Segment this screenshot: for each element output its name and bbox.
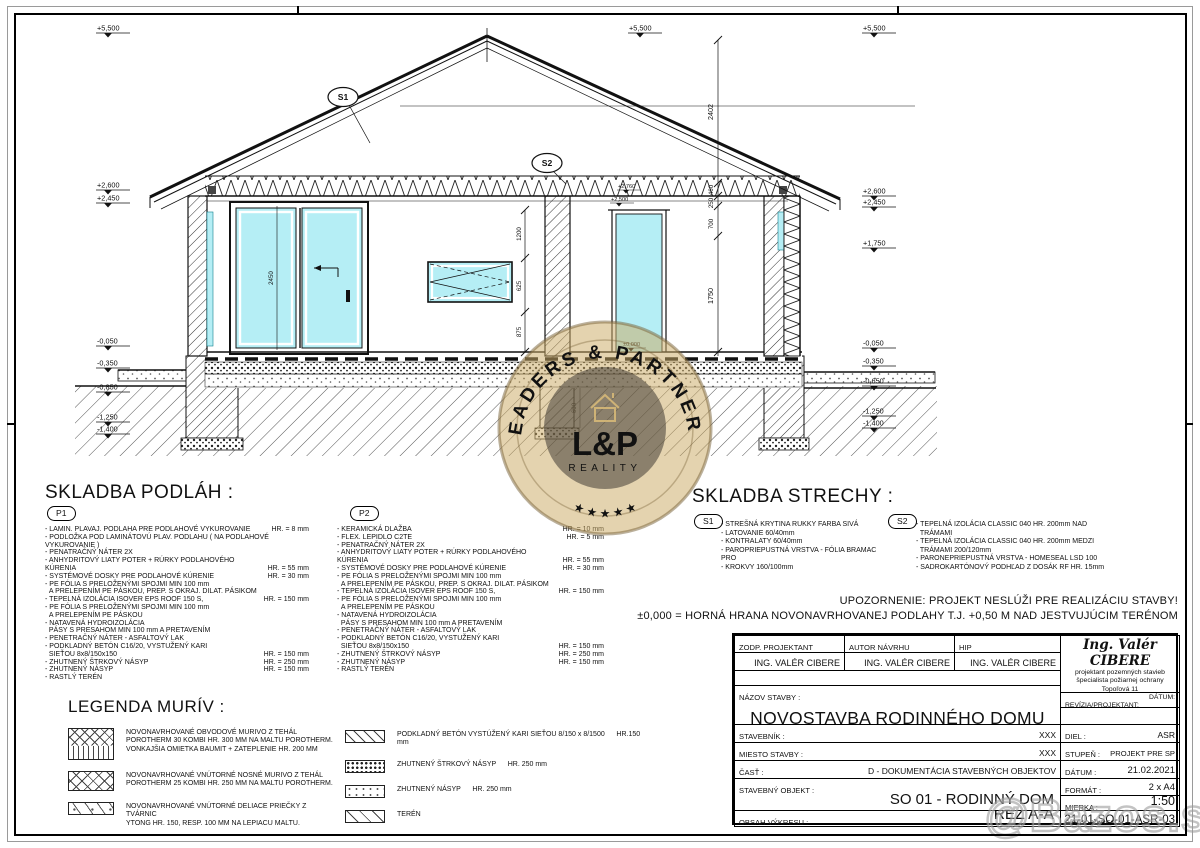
- floor-layer-text: - ZHUTNENÝ ŠTRKOVÝ NÁSYP: [337, 651, 440, 659]
- floor-layer-thickness: HR. = 30 mm: [559, 565, 604, 573]
- p1-list: - LAMIN. PLAVAJ. PODLAHA PRE PODLAHOVÉ V…: [45, 526, 309, 682]
- floor-layer-item: - PENETRAČNÝ NÁTER - ASFALTOVÝ LAK: [45, 635, 309, 643]
- obsah-label: OBSAH VÝKRESU :: [739, 818, 808, 827]
- warning-notes: UPOZORNENIE: PROJEKT NESLÚŽI PRE REALIZÁ…: [600, 594, 1178, 623]
- elevation-label: -0,350: [863, 357, 884, 366]
- elevation-label: -0,350: [97, 359, 118, 368]
- legend-swatch: [68, 771, 114, 791]
- floor-layer-item: - RASTLÝ TERÉN: [45, 674, 309, 682]
- floor-layer-text: - FLEX. LEPIDLO C2TE: [337, 534, 412, 542]
- floor-layer-thickness: HR. = 150 mm: [260, 596, 309, 604]
- project-title: NOVOSTAVBA RODINNÉHO DOMU: [739, 708, 1056, 725]
- stamp-signature: Ing. Valér CIBERE: [1065, 637, 1175, 669]
- legend-swatch: [345, 730, 385, 743]
- empty-cell: [1060, 707, 1180, 725]
- legend-title: LEGENDA MURÍV :: [68, 697, 225, 717]
- roof-layer-text: - STREŠNÁ KRYTINA RUKKY FARBA SIVÁ: [721, 521, 891, 530]
- floor-layer-thickness: HR. = 150 mm: [260, 666, 309, 674]
- floor-layer-text: - RASTLÝ TERÉN: [337, 666, 394, 674]
- format-label: FORMÁT :: [1065, 786, 1101, 795]
- datum-label: DÁTUM :: [1065, 768, 1096, 777]
- floor-layer-thickness: HR. = 150 mm: [555, 659, 604, 667]
- floor-layer-text: - PODKLADNÝ BETÓN C16/20, VYSTUŽENÝ KARI…: [45, 643, 207, 659]
- legend-swatch: [345, 785, 385, 798]
- p1-bubble: P1: [47, 506, 76, 521]
- floor-layer-text: - PE FÓLIA S PRELOŽENÝMI SPOJMI MIN 100 …: [337, 596, 501, 612]
- p2-bubble: P2: [350, 506, 379, 521]
- zero-level-line: ±0,000 = HORNÁ HRANA NOVONAVRHOVANEJ POD…: [600, 609, 1178, 624]
- legend-item: PODKLADNÝ BETÓN VYSTÚŽENÝ KARI SIEŤOU 8/…: [345, 730, 645, 748]
- s1-bubble: S1: [694, 514, 723, 529]
- elevation-label: +5,500: [97, 24, 120, 33]
- legend-text: PODKLADNÝ BETÓN VYSTÚŽENÝ KARI SIEŤOU 8/…: [397, 730, 645, 748]
- legend-item: NOVONAVRHOVANÉ OBVODOVÉ MURIVO Z TEHÁL P…: [68, 728, 338, 760]
- openings: [230, 202, 670, 354]
- house-cross-section: 2402 460 250 700 1750 1200 625 875 2450: [0, 0, 1200, 480]
- roof-layer-text: - KONTRALATY 60/40mm: [721, 538, 891, 547]
- elevation-label: +2,760: [618, 184, 635, 190]
- zodp-name: ING. VALÉR CIBERE: [754, 658, 840, 668]
- floor-layer-item: - PE FÓLIA S PRELOŽENÝMI SPOJMI MIN 100 …: [45, 604, 309, 620]
- floor-layer-thickness: HR. = 55 mm: [264, 565, 309, 573]
- elevation-label: -1,400: [863, 419, 884, 428]
- floor-layer-text: - PE FÓLIA S PRELOŽENÝMI SPOJMI MIN 100 …: [45, 581, 257, 597]
- roof-layer-text: - SADROKARTÓNOVÝ PODHĽAD Z DOSÁK RF HR. …: [916, 564, 1178, 573]
- floor-layer-thickness: HR. = 5 mm: [562, 534, 604, 542]
- bubble-s1-label: S1: [338, 92, 349, 102]
- floor-layer-item: - TEPELNÁ IZOLÁCIA ISOVER EPS ROOF 150 S…: [337, 588, 604, 596]
- elevation-label: +2,600: [97, 181, 120, 190]
- stavebnik-label: STAVEBNÍK :: [739, 732, 785, 741]
- roof-layer-text: - TEPELNÁ IZOLÁCIA CLASSIC 040 HR. 200mm…: [916, 538, 1178, 555]
- elevation-label: +2,450: [97, 194, 120, 203]
- level-markers-right: +5,500 +2,600 +2,450 +1,750 -0,050 -0,35…: [862, 24, 896, 433]
- floor-layer-item: - ZHUTNENÝ ŠTRKOVÝ NÁSYP HR. = 250 mm: [337, 651, 604, 659]
- roof-layer-text: - TEPELNÁ IZOLÁCIA CLASSIC 040 HR. 200mm…: [916, 521, 1178, 538]
- floor-layer-thickness: HR. = 55 mm: [559, 557, 604, 565]
- dim-label: 2450: [268, 271, 275, 285]
- s2-bubble: S2: [888, 514, 917, 529]
- floor-layer-thickness: HR. = 8 mm: [267, 526, 309, 534]
- elevation-label: -0,850: [97, 383, 118, 392]
- roof-layer-text: - PARONEPRIEPUSTNÁ VRSTVA - HOMESEAL LSD…: [916, 555, 1178, 564]
- floor-layer-text: - KERAMICKÁ DLAŽBA: [337, 526, 412, 534]
- legend-item: ZHUTNENÝ NÁSYP HR. 250 mm: [345, 785, 645, 798]
- wall-plate-right: [779, 186, 787, 194]
- legend-text: ZHUTNENÝ NÁSYP HR. 250 mm: [397, 785, 512, 794]
- bubble-s2-label: S2: [542, 158, 553, 168]
- mierka-value: 1:50: [1151, 795, 1175, 808]
- elevation-label: -0,650: [863, 377, 884, 386]
- format-value: 2 x A4: [1149, 782, 1175, 793]
- floor-layer-text: - LAMIN. PLAVAJ. PODLAHA PRE PODLAHOVÉ V…: [45, 526, 250, 534]
- hip-label: HIP: [959, 643, 972, 652]
- dim-label: 700: [708, 218, 715, 229]
- dim-label: 625: [516, 280, 523, 291]
- wall-right-exterior: [764, 196, 800, 356]
- interior-door: [608, 210, 670, 352]
- floor-layer-thickness: HR. = 150 mm: [555, 588, 604, 596]
- floor-layer-item: - PODLOŽKA POD LAMINÁTOVÚ PLAV. PODLAHU …: [45, 534, 309, 550]
- floor-layer-item: - ZHUTNENÝ NÁSYP HR. = 150 mm: [45, 666, 309, 674]
- floor-layer-text: - PODLOŽKA POD LAMINÁTOVÚ PLAV. PODLAHU …: [45, 534, 305, 550]
- dim-label: 460: [708, 184, 715, 195]
- wall-insulation-layer: [784, 196, 800, 356]
- wall-left-exterior: [188, 196, 213, 356]
- floor-layer-text: - SYSTÉMOVÉ DOSKY PRE PODLAHOVÉ KÚRENIE: [45, 573, 214, 581]
- floor-layer-item: - KERAMICKÁ DLAŽBA HR. = 10 mm: [337, 526, 604, 534]
- floor-layer-thickness: HR. = 250 mm: [260, 659, 309, 667]
- floor-layer-text: - ANHYDRITOVÝ LIATY POTER + RÚRKY PODLAH…: [45, 557, 264, 573]
- legend-text: ZHUTNENÝ ŠTRKOVÝ NÁSYP HR. 250 mm: [397, 760, 547, 769]
- floor-layer-text: - PODKLADNÝ BETÓN C16/20, VYSTUŽENÝ KARI…: [337, 635, 499, 651]
- legend-text: NOVONAVRHOVANÉ VNÚTORNÉ DELIACE PRIEČKY …: [126, 802, 338, 828]
- stamp-line: špecialista požiarnej ochrany: [1065, 677, 1175, 685]
- floor-layer-item: - PE FÓLIA S PRELOŽENÝMI SPOJMI MIN 100 …: [45, 581, 309, 597]
- floor-layer-thickness: HR. = 150 mm: [260, 651, 309, 659]
- dim-label: 2402: [706, 104, 715, 120]
- wall-plate-left: [208, 186, 216, 194]
- door-handle: [346, 290, 350, 302]
- floor-buildup: [205, 352, 802, 388]
- legend-swatch: [68, 728, 114, 760]
- elevation-label: -0,050: [863, 339, 884, 348]
- elevation-label: -0,050: [97, 337, 118, 346]
- legend-right-column: PODKLADNÝ BETÓN VYSTÚŽENÝ KARI SIEŤOU 8/…: [345, 730, 645, 835]
- legend-text: NOVONAVRHOVANÉ OBVODOVÉ MURIVO Z TEHÁL P…: [126, 728, 333, 754]
- floor-layer-item: - PE FÓLIA S PRELOŽENÝMI SPOJMI MIN 100 …: [337, 573, 604, 589]
- floor-layer-text: - PE FÓLIA S PRELOŽENÝMI SPOJMI MIN 100 …: [45, 604, 209, 620]
- p2-list: - KERAMICKÁ DLAŽBA HR. = 10 mm - FLEX. L…: [337, 526, 604, 674]
- dim-label: 600: [571, 402, 578, 413]
- level-marker-top-center: +5,500: [628, 24, 662, 38]
- floor-layer-text: - PENETRAČNÝ NÁTER - ASFALTOVÝ LAK: [337, 627, 476, 635]
- elevation-label: -1,250: [863, 407, 884, 416]
- floor-layer-text: - SYSTÉMOVÉ DOSKY PRE PODLAHOVÉ KÚRENIE: [337, 565, 506, 573]
- warning-line: UPOZORNENIE: PROJEKT NESLÚŽI PRE REALIZÁ…: [600, 594, 1178, 609]
- dim-chain-wall: 1200 625 875: [516, 206, 529, 356]
- cislo-value: 21-01-SO-01-ASR-03: [1064, 814, 1175, 826]
- miesto-value: XXX: [1039, 748, 1056, 758]
- floor-layer-item: - FLEX. LEPIDLO C2TE HR. = 5 mm: [337, 534, 604, 542]
- elevation-label: +2,450: [863, 198, 886, 207]
- diel-value: ASR: [1158, 730, 1175, 740]
- floors-title: SKLADBA PODLÁH :: [45, 482, 234, 504]
- glazing-cut-right: [778, 212, 784, 250]
- blueprint-sheet: 2402 460 250 700 1750 1200 625 875 2450: [0, 0, 1200, 848]
- miesto-label: MIESTO STAVBY :: [739, 750, 803, 759]
- datum-value: 21.02.2021: [1127, 765, 1175, 776]
- floor-layer-thickness: HR. = 10 mm: [559, 526, 604, 534]
- elevation-label: -1,250: [97, 413, 118, 422]
- cast-value: D - DOKUMENTÁCIA STAVEBNÝCH OBJEKTOV: [868, 766, 1056, 776]
- svg-text:★ ★ ★ ★ ★: ★ ★ ★ ★ ★: [571, 500, 638, 521]
- floor-layer-thickness: HR. = 150 mm: [555, 643, 604, 651]
- floor-layer-item: - ANHYDRITOVÝ LIATY POTER + RÚRKY PODLAH…: [337, 549, 604, 565]
- legend-item: TERÉN: [345, 810, 645, 823]
- stupen-value: PROJEKT PRE SP: [1110, 749, 1175, 758]
- dim-label: 875: [516, 326, 523, 337]
- floor-layer-text: - ANHYDRITOVÝ LIATY POTER + RÚRKY PODLAH…: [337, 549, 559, 565]
- nazov-label: NÁZOV STAVBY :: [739, 693, 800, 702]
- window: [428, 262, 512, 302]
- floor-layer-text: - TEPELNÁ IZOLÁCIA ISOVER EPS ROOF 150 S…: [45, 596, 203, 604]
- objekt-label: STAVEBNÝ OBJEKT :: [739, 786, 814, 795]
- stavebnik-value: XXX: [1039, 730, 1056, 740]
- legend-swatch: [345, 760, 385, 773]
- floor-layer-text: - NATAVENÁ HYDROIZOLÁCIA PÁSY S PRESAHOM…: [45, 620, 210, 636]
- floor-layer-text: - TEPELNÁ IZOLÁCIA ISOVER EPS ROOF 150 S…: [337, 588, 495, 596]
- roof-layer-text: - PAROPRIEPUSTNÁ VRSTVA - FÓLIA BRAMAC P…: [721, 547, 891, 564]
- s2-list: - TEPELNÁ IZOLÁCIA CLASSIC 040 HR. 200mm…: [916, 521, 1178, 573]
- designer-stamp: Ing. Valér CIBERE projektant pozemných s…: [1060, 635, 1180, 693]
- floor-layer-thickness: HR. = 250 mm: [555, 651, 604, 659]
- floor-layer-text: - ZHUTNENÝ NÁSYP: [45, 666, 113, 674]
- elevation-label: +2,600: [863, 187, 886, 196]
- floor-layer-item: - SYSTÉMOVÉ DOSKY PRE PODLAHOVÉ KÚRENIE …: [45, 573, 309, 581]
- elevation-label: +1,750: [863, 239, 886, 248]
- floor-layer-item: - SYSTÉMOVÉ DOSKY PRE PODLAHOVÉ KÚRENIE …: [337, 565, 604, 573]
- wall-middle-interior: [545, 196, 570, 356]
- floor-layer-thickness: HR. = 30 mm: [264, 573, 309, 581]
- terrace-left: [118, 370, 188, 381]
- floor-layer-item: - LAMIN. PLAVAJ. PODLAHA PRE PODLAHOVÉ V…: [45, 526, 309, 534]
- elevation-label: ±0,000: [623, 342, 640, 348]
- legend-swatch: [345, 810, 385, 823]
- legend-text: NOVONAVRHOVANÉ VNÚTORNÉ NOSNÉ MURIVO Z T…: [126, 771, 333, 789]
- objekt-value: SO 01 - RODINNÝ DOM: [890, 791, 1054, 808]
- floor-layer-item: - NATAVENÁ HYDROIZOLÁCIA PÁSY S PRESAHOM…: [45, 620, 309, 636]
- dim-label: 250: [708, 197, 715, 208]
- dim-label: 1750: [706, 288, 715, 304]
- floor-layer-text: - PENETRAČNÝ NÁTER - ASFALTOVÝ LAK: [45, 635, 184, 643]
- floor-layer-item: - NATAVENÁ HYDROIZOLÁCIA PÁSY S PRESAHOM…: [337, 612, 604, 628]
- roof-layer-text: - KROKVY 160/100mm: [721, 564, 891, 573]
- floor-layer-item: - PE FÓLIA S PRELOŽENÝMI SPOJMI MIN 100 …: [337, 596, 604, 612]
- legend-item: NOVONAVRHOVANÉ VNÚTORNÉ DELIACE PRIEČKY …: [68, 802, 338, 828]
- legend-text: TERÉN: [397, 810, 421, 819]
- glazing-cut-left: [207, 212, 213, 346]
- elevation-label: +2,500: [611, 197, 628, 203]
- sliding-door: [230, 202, 368, 354]
- diel-label: DIEL :: [1065, 732, 1086, 741]
- obsah-value: REZ A-A: [994, 810, 1054, 824]
- autor-label: AUTOR NÁVRHU: [849, 643, 910, 652]
- dim-label: 1200: [516, 227, 523, 241]
- legend-left-column: NOVONAVRHOVANÉ OBVODOVÉ MURIVO Z TEHÁL P…: [68, 728, 338, 839]
- floor-layer-text: - RASTLÝ TERÉN: [45, 674, 102, 682]
- floor-layer-item: - ANHYDRITOVÝ LIATY POTER + RÚRKY PODLAH…: [45, 557, 309, 573]
- hip-name: ING. VALÉR CIBERE: [970, 658, 1056, 668]
- elevation-label: +5,500: [863, 24, 886, 33]
- floor-layer-item: - PODKLADNÝ BETÓN C16/20, VYSTUŽENÝ KARI…: [337, 635, 604, 651]
- floor-layer-item: - RASTLÝ TERÉN: [337, 666, 604, 674]
- floor-layer-item: - PENETRAČNÝ NÁTER - ASFALTOVÝ LAK: [337, 627, 604, 635]
- stamp-line: projektant pozemných stavieb: [1065, 669, 1175, 677]
- elevation-label: +5,500: [629, 24, 652, 33]
- floor-layer-item: - PODKLADNÝ BETÓN C16/20, VYSTUŽENÝ KARI…: [45, 643, 309, 659]
- legend-item: NOVONAVRHOVANÉ VNÚTORNÉ NOSNÉ MURIVO Z T…: [68, 771, 338, 791]
- cast-label: ČASŤ :: [739, 768, 763, 777]
- autor-name: ING. VALÉR CIBERE: [864, 658, 950, 668]
- floor-layer-text: - NATAVENÁ HYDROIZOLÁCIA PÁSY S PRESAHOM…: [337, 612, 502, 628]
- zodp-label: ZODP. PROJEKTANT: [739, 643, 813, 652]
- revizia-datum-label: DÁTUM:: [1149, 694, 1175, 701]
- floor-layer-item: - TEPELNÁ IZOLÁCIA ISOVER EPS ROOF 150 S…: [45, 596, 309, 604]
- legend-item: ZHUTNENÝ ŠTRKOVÝ NÁSYP HR. 250 mm: [345, 760, 645, 773]
- legend-swatch: [68, 802, 114, 815]
- seal-stars: ★ ★ ★ ★ ★: [571, 500, 638, 521]
- roof-title: SKLADBA STRECHY :: [692, 486, 893, 508]
- stupen-label: STUPEŇ :: [1065, 750, 1100, 759]
- floor-layer-text: - PE FÓLIA S PRELOŽENÝMI SPOJMI MIN 100 …: [337, 573, 549, 589]
- title-block: ZODP. PROJEKTANT AUTOR NÁVRHU HIP ING. V…: [732, 633, 1178, 825]
- roof-layer-text: - LATOVANIE 60/40mm: [721, 530, 891, 539]
- elevation-label: -1,400: [97, 425, 118, 434]
- s1-list: - STREŠNÁ KRYTINA RUKKY FARBA SIVÁ- LATO…: [721, 521, 891, 573]
- empty-cell: [734, 670, 1061, 686]
